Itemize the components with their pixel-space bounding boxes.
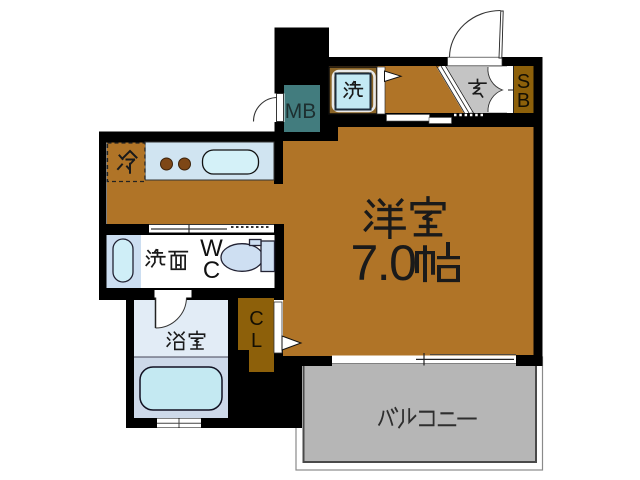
svg-text:C: C <box>249 308 263 330</box>
svg-text:MB: MB <box>285 100 317 123</box>
svg-text:L: L <box>251 330 262 352</box>
svg-text:C: C <box>203 257 220 284</box>
svg-text:B: B <box>517 90 530 112</box>
svg-text:7.0: 7.0 <box>350 235 415 291</box>
